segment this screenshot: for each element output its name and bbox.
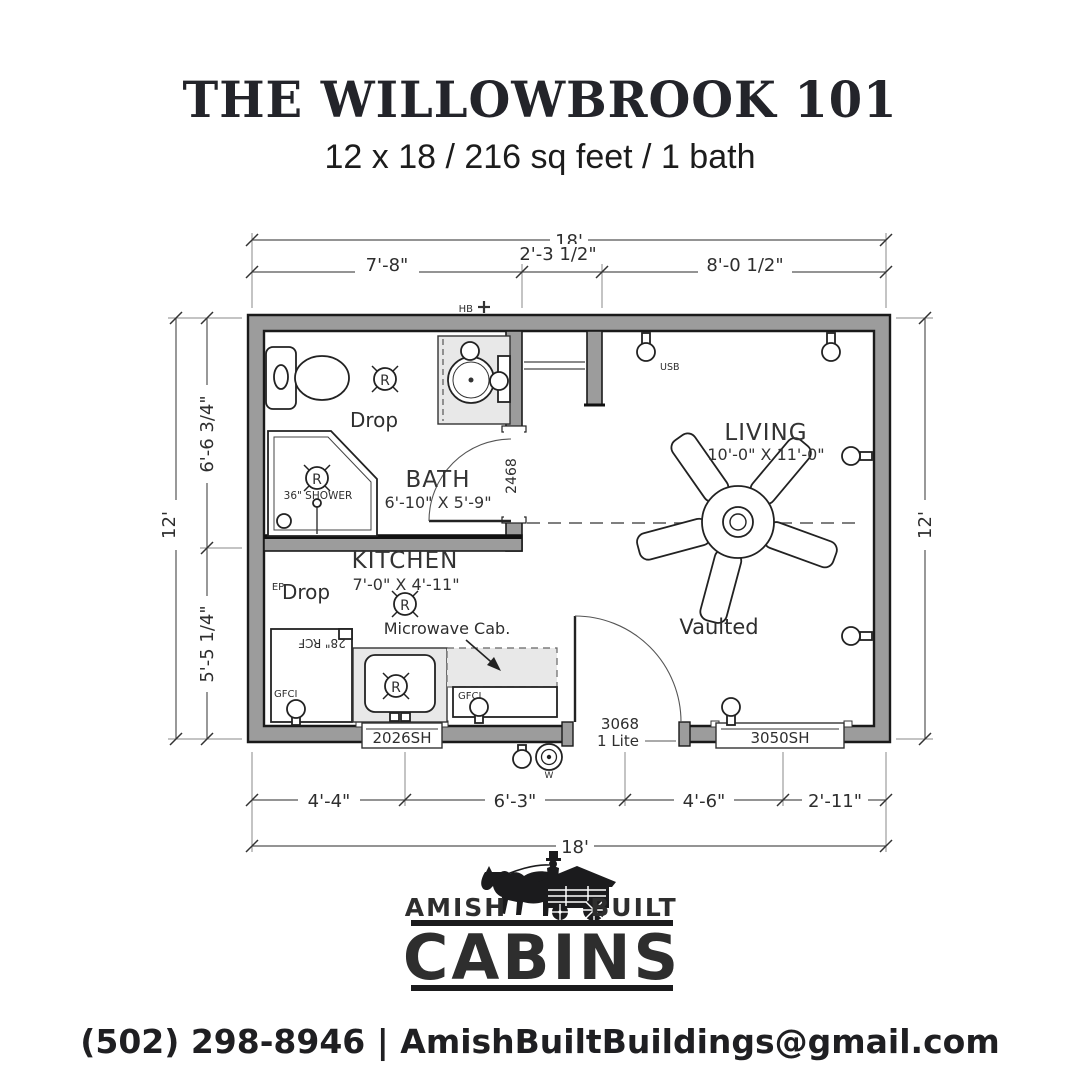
dim-bottom-seg-2: 6'-3" (494, 791, 537, 812)
light-symbol-letter: R (312, 472, 322, 488)
dim-left-seg-2: 5'-5 1/4" (197, 605, 218, 682)
brand-main: CABINS (403, 921, 681, 994)
brand-logo: AMISH BUILT CABINS (395, 848, 690, 1003)
drop-bath-label: Drop (350, 408, 398, 432)
outlet-right-upper (842, 447, 872, 465)
bath-size: 6'-10" X 5'-9" (384, 493, 491, 512)
floor-plan: 18' 7'-8" 2'-3 1/2" 8'-0 1/2" 4'-4" 6'-3… (150, 218, 950, 866)
flyer-page: THE WILLOWBROOK 101 12 x 18 / 216 sq fee… (0, 0, 1080, 1080)
horse-ear-icon (485, 866, 493, 874)
outlet-top-right (822, 333, 840, 361)
toilet (266, 347, 349, 409)
fridge-label: 28" RCF (298, 636, 346, 650)
logo-divider-bottom (411, 985, 673, 991)
dim-bottom-seg-1: 4'-4" (308, 791, 351, 812)
dim-bottom-seg-4: 2'-11" (808, 791, 862, 812)
dim-top-seg-3: 8'-0 1/2" (706, 255, 783, 276)
outlet-right-lower (842, 627, 872, 645)
kitchen-window: 2026SH (356, 721, 448, 748)
microwave-label: Microwave Cab. (384, 619, 511, 638)
recessed-light-kitchen: R (392, 591, 418, 617)
hb-label: HB (459, 304, 474, 315)
living-name: LIVING (724, 420, 807, 446)
recessed-light-sink: R (383, 673, 409, 699)
kitchen-name: KITCHEN (352, 548, 459, 574)
dim-left-seg-1: 6'-6 3/4" (197, 395, 218, 472)
drop-kitchen-label: Drop (282, 580, 330, 604)
dim-top-seg-1: 7'-8" (366, 255, 409, 276)
bath-door-size: 2468 (504, 458, 520, 494)
entry-door-size: 3068 (601, 715, 639, 733)
closet-shelf (524, 362, 585, 369)
usb-label: USB (660, 362, 680, 373)
shower-label: 36" SHOWER (284, 490, 353, 502)
recessed-light-bath: R (372, 366, 398, 392)
dim-right-overall: 12' (915, 511, 936, 539)
hose-bib: HB (459, 301, 490, 315)
vaulted-label: Vaulted (679, 615, 758, 639)
entry-door: 3068 1 Lite (562, 616, 690, 750)
contact-line: (502) 298-8946 | AmishBuiltBuildings@gma… (0, 1022, 1080, 1061)
dim-top-seg-2: 2'-3 1/2" (519, 244, 596, 265)
kitchen-window-label: 2026SH (373, 729, 432, 747)
brand-right: BUILT (590, 893, 678, 922)
dim-left-overall: 12' (159, 511, 180, 539)
light-symbol-letter: R (380, 373, 390, 389)
light-symbol-letter: R (391, 680, 401, 696)
logo-art: AMISH BUILT CABINS (403, 851, 681, 994)
outlet-exterior-wp: W (513, 744, 562, 781)
living-size: 10'-0" X 11'-0" (707, 445, 824, 464)
entry-door-type: 1 Lite (597, 732, 639, 750)
wp-label: W (545, 771, 554, 781)
brand-left: AMISH (405, 893, 507, 922)
refrigerator: 28" RCF (271, 629, 352, 722)
gfci-label: GFCI (274, 689, 297, 700)
living-window-label: 3050SH (751, 729, 810, 747)
recessed-light-shower: R (304, 465, 330, 491)
kitchen-size: 7'-0" X 4'-11" (352, 575, 459, 594)
bath-name: BATH (405, 467, 470, 493)
ep-label: EP (272, 582, 284, 593)
outlet-usb: USB (637, 333, 680, 373)
light-symbol-letter: R (400, 598, 410, 614)
dim-bottom-seg-3: 4'-6" (683, 791, 726, 812)
page-subtitle: 12 x 18 / 216 sq feet / 1 bath (0, 138, 1080, 177)
bath-vanity (438, 336, 510, 424)
outlet-bottom-living (722, 698, 740, 725)
kitchen-counter (447, 648, 557, 717)
page-title: THE WILLOWBROOK 101 (22, 70, 1059, 129)
